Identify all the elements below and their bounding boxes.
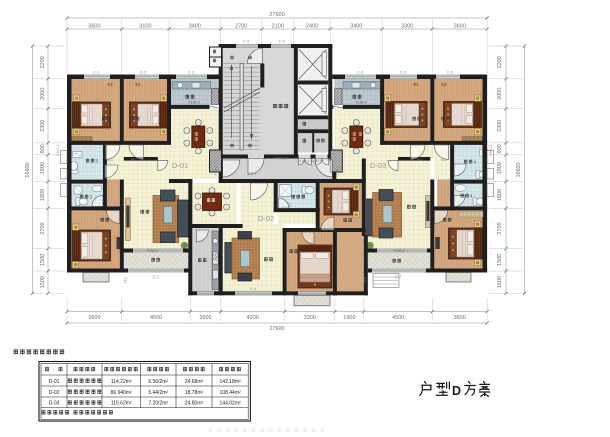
svg-text:TLM-2: TLM-2 bbox=[394, 249, 405, 253]
svg-text:6.56/2m²: 6.56/2m² bbox=[148, 379, 168, 385]
svg-text:3600: 3600 bbox=[454, 23, 466, 29]
svg-text:115.62m²: 115.62m² bbox=[111, 401, 132, 407]
svg-text:M-1: M-1 bbox=[131, 158, 137, 162]
svg-text:3600: 3600 bbox=[88, 315, 100, 321]
svg-text:FHM-1 FHM-1: FHM-1 FHM-1 bbox=[298, 160, 322, 164]
svg-text:1800: 1800 bbox=[40, 162, 46, 174]
svg-text:4500: 4500 bbox=[150, 315, 162, 321]
svg-text:D-02: D-02 bbox=[258, 214, 274, 223]
svg-text:D-03: D-03 bbox=[49, 401, 60, 407]
svg-text:2400: 2400 bbox=[306, 23, 318, 29]
svg-text:800: 800 bbox=[40, 144, 46, 153]
svg-text:3100: 3100 bbox=[139, 23, 151, 29]
svg-text:3300: 3300 bbox=[401, 23, 413, 29]
svg-text:2200: 2200 bbox=[497, 56, 503, 68]
svg-text:27600: 27600 bbox=[270, 326, 285, 332]
svg-text:2000: 2000 bbox=[40, 88, 46, 100]
svg-text:FHC-1: FHC-1 bbox=[489, 144, 493, 155]
svg-text:M-1: M-1 bbox=[441, 158, 447, 162]
svg-text:K2: K2 bbox=[107, 82, 113, 87]
svg-text:16600: 16600 bbox=[516, 163, 522, 178]
svg-text:144.02m²: 144.02m² bbox=[220, 401, 241, 407]
svg-text:K2: K2 bbox=[413, 82, 419, 87]
svg-text:1500: 1500 bbox=[497, 254, 503, 266]
svg-text:C-2: C-2 bbox=[279, 39, 286, 44]
svg-text:1500: 1500 bbox=[497, 276, 503, 288]
svg-text:86.940m²: 86.940m² bbox=[111, 390, 132, 396]
svg-text:4500: 4500 bbox=[392, 315, 404, 321]
svg-text:C-2: C-2 bbox=[400, 70, 407, 75]
svg-text:16600: 16600 bbox=[25, 162, 31, 178]
svg-text:18.78m²: 18.78m² bbox=[185, 390, 204, 396]
svg-text:2000: 2000 bbox=[199, 315, 211, 321]
svg-text:4200: 4200 bbox=[247, 315, 259, 321]
svg-text:FHC-1: FHC-1 bbox=[56, 144, 60, 155]
svg-text:800: 800 bbox=[497, 144, 503, 153]
svg-text:1800: 1800 bbox=[497, 162, 503, 174]
svg-text:D-02: D-02 bbox=[49, 390, 60, 396]
svg-text:3600: 3600 bbox=[88, 23, 100, 29]
svg-text:TLC: TLC bbox=[363, 276, 367, 283]
svg-text:C-2: C-2 bbox=[140, 70, 147, 75]
svg-text:HM-1: HM-1 bbox=[214, 165, 218, 174]
svg-text:2000: 2000 bbox=[497, 88, 503, 100]
svg-text:2100: 2100 bbox=[272, 23, 284, 29]
svg-text:2200: 2200 bbox=[40, 56, 46, 68]
svg-text:3600: 3600 bbox=[454, 315, 466, 321]
svg-text:2300: 2300 bbox=[497, 120, 503, 132]
svg-text:1500: 1500 bbox=[40, 276, 46, 288]
svg-text:1800: 1800 bbox=[497, 189, 503, 201]
svg-text:C-2: C-2 bbox=[447, 70, 454, 75]
svg-text:FHM-2: FHM-2 bbox=[275, 156, 288, 161]
svg-text:24.80m²: 24.80m² bbox=[185, 401, 204, 407]
svg-text:142.18m²: 142.18m² bbox=[220, 379, 241, 385]
svg-text:2300: 2300 bbox=[40, 120, 46, 132]
svg-text:114.22m²: 114.22m² bbox=[111, 379, 132, 385]
svg-text:C-2: C-2 bbox=[243, 39, 250, 44]
svg-text:C-2: C-2 bbox=[188, 70, 195, 75]
svg-text:C-2: C-2 bbox=[357, 70, 364, 75]
svg-text:27600: 27600 bbox=[269, 12, 285, 18]
svg-text:2700: 2700 bbox=[497, 222, 503, 234]
svg-text:D-01: D-01 bbox=[172, 161, 188, 170]
svg-text:K2: K2 bbox=[135, 82, 141, 87]
svg-text:D-01: D-01 bbox=[49, 379, 60, 385]
svg-text:D-03: D-03 bbox=[370, 161, 386, 170]
svg-text:3300: 3300 bbox=[304, 315, 316, 321]
svg-text:1500: 1500 bbox=[40, 254, 46, 266]
svg-text:5.44/2m²: 5.44/2m² bbox=[148, 390, 168, 396]
svg-text:M-1: M-1 bbox=[417, 158, 423, 162]
svg-text:D: D bbox=[452, 384, 461, 398]
svg-text:108.44m²: 108.44m² bbox=[220, 390, 241, 396]
svg-text:HM-1: HM-1 bbox=[336, 165, 340, 174]
svg-text:C-1: C-1 bbox=[93, 70, 100, 75]
svg-text:1800: 1800 bbox=[40, 189, 46, 201]
svg-text:C-7: C-7 bbox=[153, 275, 160, 280]
svg-text:C-4: C-4 bbox=[250, 286, 257, 291]
svg-text:1900: 1900 bbox=[343, 315, 355, 321]
svg-text:K2: K2 bbox=[441, 82, 447, 87]
svg-text:TLC: TLC bbox=[124, 276, 128, 283]
svg-text:7.20/2m²: 7.20/2m² bbox=[148, 401, 168, 407]
svg-text:TLM-2: TLM-2 bbox=[147, 249, 158, 253]
svg-text:2700: 2700 bbox=[235, 23, 247, 29]
svg-text:24.68m²: 24.68m² bbox=[185, 379, 204, 385]
svg-text:TLM-2: TLM-2 bbox=[188, 100, 200, 105]
svg-text:TLM-2: TLM-2 bbox=[355, 100, 367, 105]
svg-text:3400: 3400 bbox=[189, 23, 201, 29]
svg-text:3400: 3400 bbox=[350, 23, 362, 29]
svg-text:M-1: M-1 bbox=[107, 158, 113, 162]
svg-text:2700: 2700 bbox=[40, 222, 46, 234]
svg-text:C-7: C-7 bbox=[395, 275, 402, 280]
svg-text:HM-1: HM-1 bbox=[247, 172, 256, 176]
